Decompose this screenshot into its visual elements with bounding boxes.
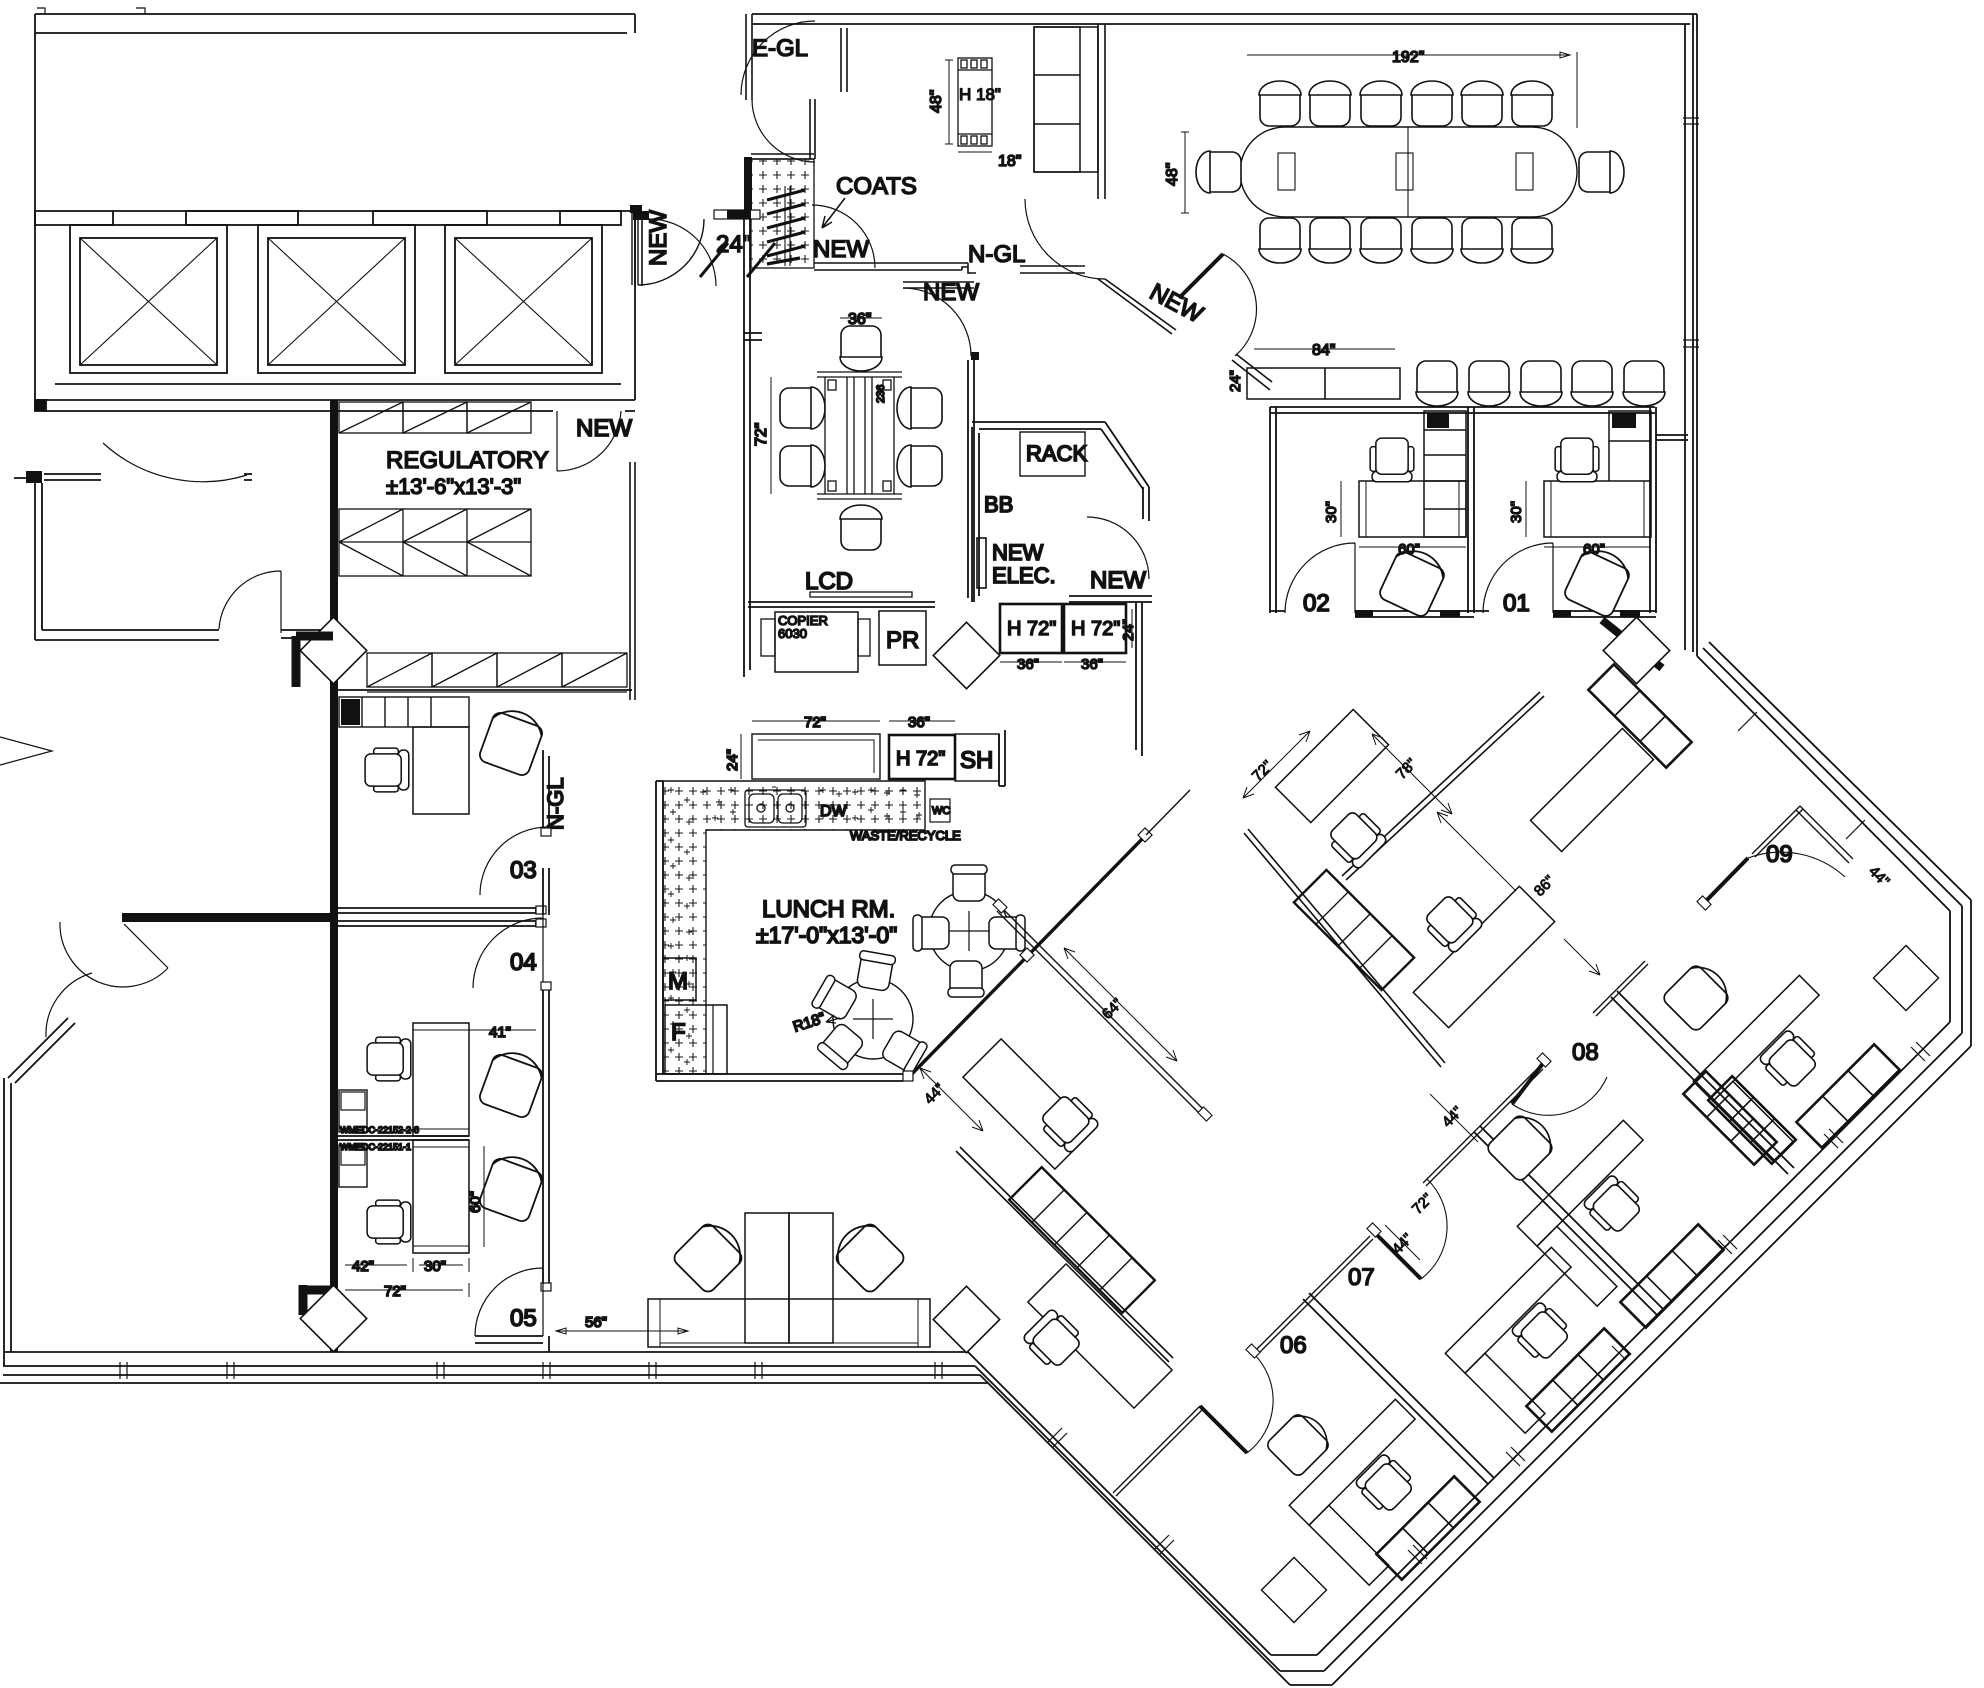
svg-text:NEW: NEW [576, 415, 632, 442]
svg-text:NEW: NEW [923, 279, 979, 306]
svg-text:ELEC.: ELEC. [992, 563, 1056, 588]
svg-text:07: 07 [1348, 1264, 1375, 1291]
svg-text:41": 41" [489, 1024, 511, 1041]
svg-text:24": 24" [1227, 370, 1244, 392]
svg-text:NEW: NEW [813, 236, 869, 263]
svg-text:E-GL: E-GL [752, 35, 808, 62]
svg-text:36": 36" [908, 714, 930, 731]
svg-text:30": 30" [1323, 501, 1340, 523]
svg-text:42": 42" [352, 1258, 374, 1275]
svg-text:NEW: NEW [645, 210, 672, 266]
svg-text:36": 36" [848, 311, 871, 328]
svg-text:24": 24" [724, 749, 741, 771]
svg-text:WC: WC [932, 805, 950, 817]
svg-text:01: 01 [1503, 590, 1530, 617]
svg-text:WASTE/RECYCLE: WASTE/RECYCLE [850, 828, 961, 843]
svg-text:N-GL: N-GL [543, 777, 568, 830]
svg-text:NEW: NEW [1090, 567, 1146, 594]
svg-text:192": 192" [1392, 49, 1424, 66]
svg-text:08: 08 [1572, 1039, 1599, 1066]
svg-text:6030: 6030 [778, 626, 807, 641]
svg-text:COATS: COATS [836, 173, 917, 200]
svg-text:H 72": H 72" [896, 748, 945, 770]
svg-text:48": 48" [1164, 163, 1181, 186]
svg-text:18": 18" [998, 153, 1021, 170]
svg-text:BB: BB [984, 492, 1013, 517]
svg-text:30": 30" [424, 1258, 446, 1275]
svg-text:30": 30" [1508, 501, 1525, 523]
svg-text:36": 36" [1081, 656, 1103, 673]
svg-text:60": 60" [1398, 541, 1420, 558]
svg-text:NEW: NEW [992, 540, 1044, 565]
svg-text:N-GL: N-GL [968, 241, 1025, 268]
svg-text:72": 72" [384, 1283, 406, 1300]
svg-text:F: F [671, 1019, 686, 1046]
svg-text:84": 84" [1312, 342, 1335, 359]
svg-text:09: 09 [1766, 841, 1793, 868]
svg-text:H 18": H 18" [959, 85, 1001, 104]
svg-text:±13'-6"x13'-3": ±13'-6"x13'-3" [386, 474, 521, 499]
svg-text:RACK: RACK [1026, 441, 1087, 466]
svg-text:H 72": H 72" [1071, 618, 1120, 640]
svg-text:02: 02 [1303, 590, 1330, 617]
svg-text:06: 06 [1280, 1332, 1307, 1359]
svg-text:60": 60" [467, 1191, 484, 1213]
svg-text:M: M [668, 968, 688, 995]
svg-text:±17'-0"x13'-0": ±17'-0"x13'-0" [756, 922, 897, 948]
svg-text:72": 72" [753, 423, 770, 446]
svg-text:WMEDC-22152-2-8: WMEDC-22152-2-8 [340, 1125, 419, 1135]
svg-text:05: 05 [510, 1305, 537, 1332]
svg-text:236: 236 [875, 385, 887, 403]
svg-text:24": 24" [1120, 619, 1137, 641]
svg-text:LCD: LCD [805, 568, 853, 595]
svg-text:56": 56" [585, 1314, 607, 1331]
svg-text:H 72": H 72" [1007, 618, 1056, 640]
svg-text:72": 72" [804, 714, 826, 731]
svg-text:60": 60" [1583, 541, 1605, 558]
svg-text:03: 03 [510, 857, 537, 884]
svg-text:04: 04 [510, 949, 537, 976]
svg-text:48": 48" [928, 90, 945, 113]
svg-text:DW: DW [820, 803, 848, 820]
svg-text:24": 24" [716, 231, 751, 258]
svg-text:LUNCH RM.: LUNCH RM. [762, 896, 895, 923]
svg-text:PR: PR [886, 627, 919, 654]
svg-text:SH: SH [960, 747, 993, 774]
svg-text:REGULATORY: REGULATORY [386, 447, 549, 474]
svg-text:36": 36" [1017, 656, 1039, 673]
